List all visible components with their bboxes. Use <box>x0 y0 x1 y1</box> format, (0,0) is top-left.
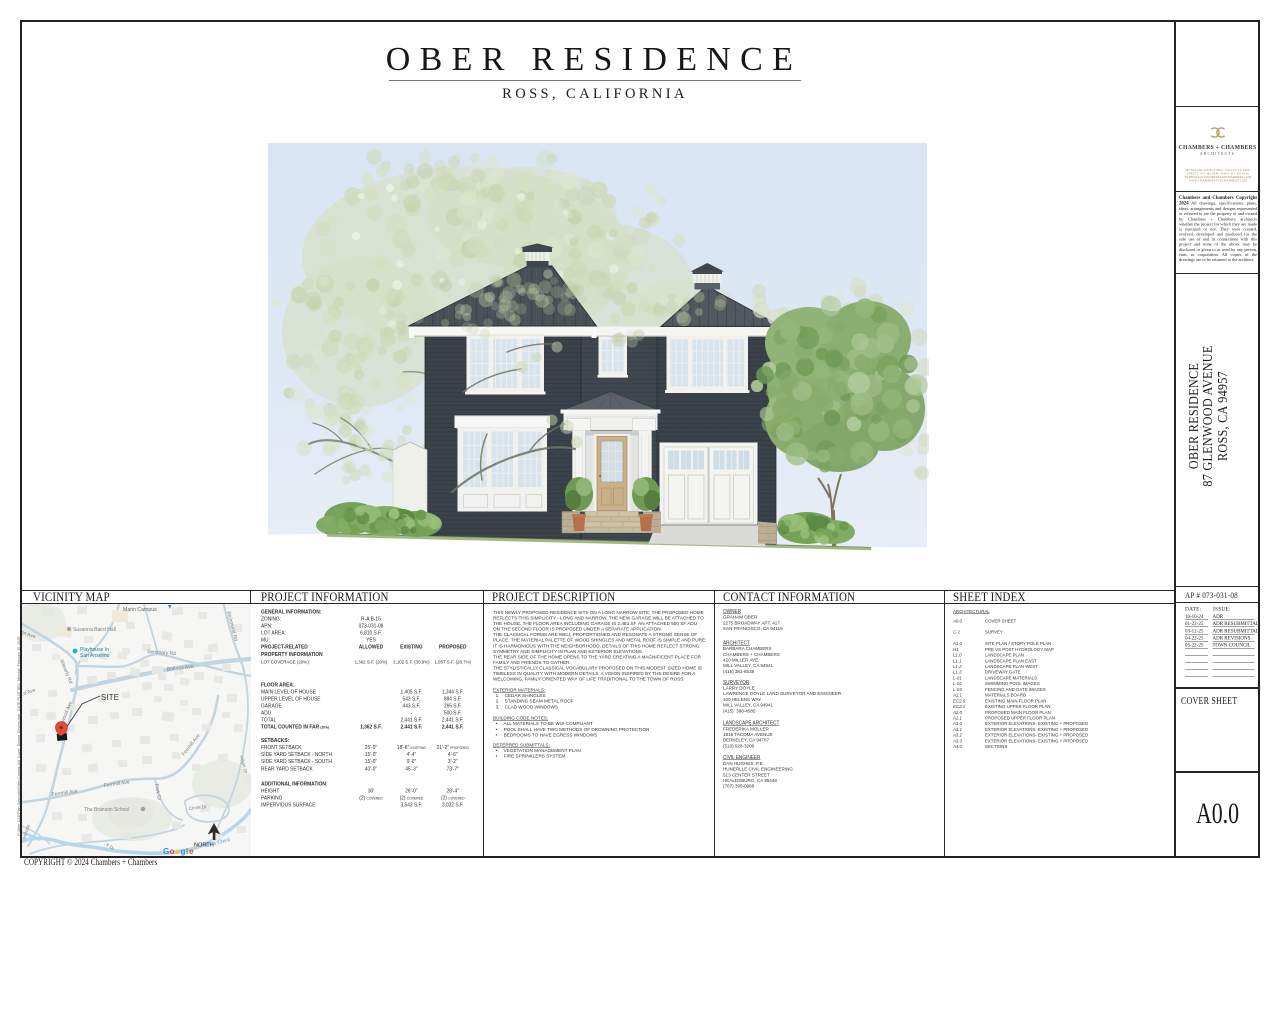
svg-text:Susanna Baird Hall: Susanna Baird Hall <box>73 627 116 633</box>
svg-text:g: g <box>180 847 185 856</box>
svg-text:o: o <box>175 847 180 856</box>
svg-text:San Anselmo: San Anselmo <box>80 653 110 659</box>
svg-text:SITE: SITE <box>101 693 119 702</box>
svg-text:G: G <box>163 847 169 856</box>
svg-text:e: e <box>189 847 194 856</box>
svg-text:The Branson School: The Branson School <box>84 807 129 813</box>
svg-text:Marin Campus: Marin Campus <box>123 607 157 613</box>
svg-text:o: o <box>169 847 174 856</box>
svg-text:l: l <box>186 847 188 856</box>
